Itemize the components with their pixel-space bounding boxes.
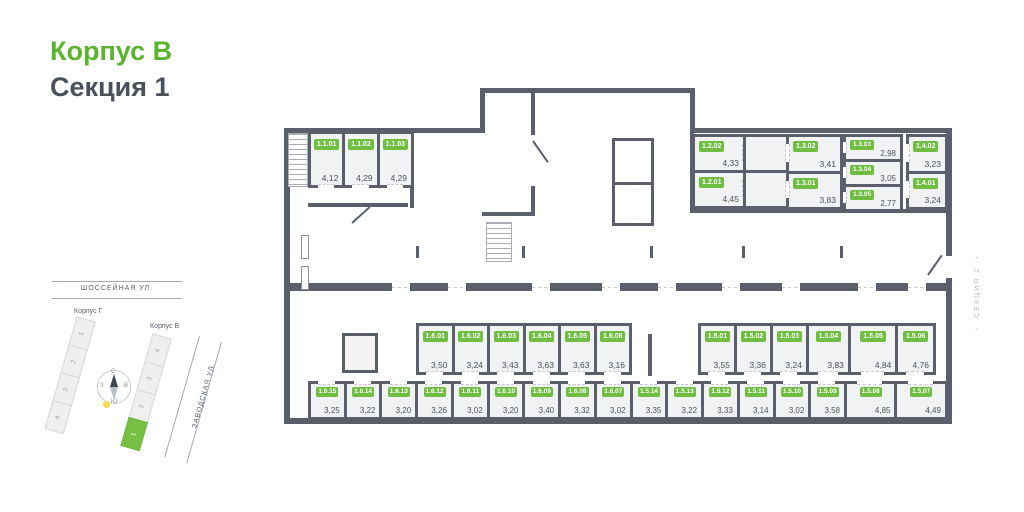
room-1.4.02[interactable]: 1.4.023,23 bbox=[906, 134, 948, 174]
room-unlabeled bbox=[342, 333, 378, 373]
room-1.2.01[interactable]: 1.2.014,45 bbox=[692, 170, 746, 209]
room-id-badge[interactable]: 1.3.05 bbox=[850, 190, 874, 200]
wall-mid-stub bbox=[648, 334, 652, 376]
room-area-value: 3,58 bbox=[824, 406, 840, 415]
column-mark bbox=[416, 246, 419, 258]
room-1.2.02[interactable]: 1.2.024,33 bbox=[692, 134, 746, 173]
minimap-section-1[interactable]: 1 bbox=[120, 417, 147, 451]
room-id-badge[interactable]: 1.5.13 bbox=[674, 387, 696, 397]
room-area-value: 3,02 bbox=[789, 406, 805, 415]
room-area-value: 3,02 bbox=[610, 406, 626, 415]
corridor-opening bbox=[858, 283, 876, 291]
room-area-value: 4,29 bbox=[390, 173, 407, 183]
room-area-value: 3,35 bbox=[646, 406, 662, 415]
room-1.4.01[interactable]: 1.4.013,24 bbox=[906, 171, 948, 211]
compass-icon: С З В Ю bbox=[97, 370, 131, 404]
room-group-bottom: 1.6.153,251.6.143,221.6.133,201.6.123,26… bbox=[308, 381, 948, 420]
room-1.3.03[interactable]: 1.3.032,98 bbox=[843, 134, 903, 162]
room-group-empty bbox=[743, 134, 789, 209]
wall-tower-top bbox=[480, 88, 695, 93]
room-area-value: 2,77 bbox=[880, 199, 896, 208]
room-area-value: 3,43 bbox=[502, 360, 519, 370]
room-area-value: 3,24 bbox=[924, 195, 941, 205]
room-area-value: 3,23 bbox=[924, 159, 941, 169]
room-area-value: 3,20 bbox=[503, 406, 519, 415]
column-mark bbox=[840, 246, 843, 258]
room-id-badge[interactable]: 1.2.01 bbox=[699, 177, 724, 188]
room-1.5.06[interactable]: 1.5.064,76 bbox=[895, 323, 936, 375]
sun-position-icon bbox=[103, 401, 110, 408]
room-1.6.02[interactable]: 1.6.023,24 bbox=[452, 323, 491, 375]
compass-needle-south bbox=[110, 387, 118, 400]
korpus-g-strip[interactable]: 1234 bbox=[44, 317, 95, 434]
corridor-opening bbox=[532, 283, 550, 291]
room-1.5.03[interactable]: 1.5.033,24 bbox=[770, 323, 809, 375]
section2-arrow-icon: ‹ bbox=[974, 326, 981, 330]
room-group-1-3-b: 1.3.032,981.3.043,051.3.052,77 bbox=[843, 134, 903, 212]
compass-needle-north bbox=[110, 374, 118, 387]
room-area-value: 4,49 bbox=[925, 406, 941, 415]
street-top-line bbox=[52, 298, 182, 299]
room-id-badge[interactable]: 1.3.01 bbox=[793, 178, 818, 189]
floorplan-page: Корпус В Секция 1 1.1.014,121.1.024,291.… bbox=[0, 0, 1024, 512]
room-id-badge[interactable]: 1.1.01 bbox=[314, 139, 339, 150]
room-1.6.07[interactable]: 1.6.073,02 bbox=[594, 381, 633, 420]
room-area-value: 4,85 bbox=[875, 406, 891, 415]
room-area-value: 4,29 bbox=[356, 173, 373, 183]
room-area-value: 3,26 bbox=[431, 406, 447, 415]
minimap-section-number: 3 bbox=[62, 387, 70, 392]
room-area-value: 3,16 bbox=[608, 360, 625, 370]
room-1.6.08[interactable]: 1.6.083,32 bbox=[558, 381, 597, 420]
room-1.6.13[interactable]: 1.6.133,20 bbox=[379, 381, 418, 420]
room-id-badge[interactable]: 1.5.01 bbox=[705, 331, 730, 342]
room-1.5.10[interactable]: 1.5.103,02 bbox=[773, 381, 812, 420]
room-area-value: 3,40 bbox=[539, 406, 555, 415]
room-id-badge[interactable]: 1.4.02 bbox=[913, 141, 938, 152]
room-area-value: 2,98 bbox=[880, 149, 896, 158]
wall-inner-left-wing-horizontal bbox=[308, 203, 408, 207]
column-mark bbox=[522, 246, 525, 258]
room-area-value: 3,36 bbox=[749, 360, 766, 370]
wall-niche bbox=[301, 235, 309, 259]
room-id-badge[interactable]: 1.6.03 bbox=[494, 331, 519, 342]
minimap-section-number: 2 bbox=[70, 359, 78, 364]
korpus-g-label: Корпус Г bbox=[74, 308, 102, 315]
room-1.5.13[interactable]: 1.5.133,22 bbox=[665, 381, 704, 420]
room-area-value: 3,24 bbox=[785, 360, 802, 370]
room-group-1-1: 1.1.014,121.1.024,291.1.034,29 bbox=[308, 131, 414, 188]
room-area-value: 3,22 bbox=[360, 406, 376, 415]
room-id-badge[interactable]: 1.5.14 bbox=[638, 387, 660, 397]
minimap-section-number: 3 bbox=[146, 376, 154, 381]
column-mark bbox=[742, 246, 745, 258]
room-1.1.03[interactable]: 1.1.034,29 bbox=[377, 131, 414, 188]
room-area-value: 3,20 bbox=[396, 406, 412, 415]
room-area-value: 4,33 bbox=[722, 158, 739, 168]
compass-east-label: В bbox=[124, 383, 128, 389]
room-1.6.03[interactable]: 1.6.033,43 bbox=[487, 323, 526, 375]
wall-tower-left bbox=[480, 88, 485, 133]
room-1.5.02[interactable]: 1.5.023,36 bbox=[734, 323, 773, 375]
room-area-value: 3,33 bbox=[717, 406, 733, 415]
room-1.6.10[interactable]: 1.6.103,20 bbox=[487, 381, 526, 420]
room-id-badge[interactable]: 1.5.04 bbox=[816, 331, 841, 342]
room-group-1-4: 1.4.023,231.4.013,24 bbox=[906, 134, 948, 210]
room-1.5.05[interactable]: 1.5.054,84 bbox=[848, 323, 899, 375]
elevator-divider bbox=[615, 182, 651, 185]
room-id-badge[interactable]: 1.6.13 bbox=[388, 387, 410, 397]
room-1.6.14[interactable]: 1.6.143,22 bbox=[344, 381, 383, 420]
wall-niche bbox=[301, 266, 309, 290]
corridor-opening bbox=[448, 283, 466, 291]
room-id-badge[interactable]: 1.6.10 bbox=[495, 387, 517, 397]
room-id-badge[interactable]: 1.6.01 bbox=[423, 331, 448, 342]
room-1.1.02[interactable]: 1.1.024,29 bbox=[342, 131, 379, 188]
room-1.3.01[interactable]: 1.3.013,83 bbox=[786, 171, 843, 211]
room-id-badge[interactable]: 1.6.02 bbox=[458, 331, 483, 342]
section-title: Секция 1 bbox=[50, 72, 170, 103]
column-mark bbox=[650, 246, 653, 258]
wall-tower-right bbox=[690, 88, 695, 133]
room-area-value: 4,12 bbox=[322, 173, 339, 183]
room-id-badge[interactable]: 1.6.05 bbox=[565, 331, 590, 342]
room-area-value: 3,63 bbox=[573, 360, 590, 370]
corridor-opening bbox=[908, 283, 926, 291]
room-id-badge[interactable]: 1.6.12 bbox=[424, 387, 446, 397]
room-id-badge[interactable]: 1.6.14 bbox=[352, 387, 374, 397]
room-id-badge[interactable]: 1.6.08 bbox=[566, 387, 588, 397]
room-id-badge[interactable]: 1.6.15 bbox=[316, 387, 338, 397]
street-top-label: ШОССЕЙНАЯ УЛ. bbox=[52, 285, 182, 292]
room-group-1-6-upper: 1.6.013,501.6.023,241.6.033,431.6.043,63… bbox=[416, 323, 632, 375]
room-area-value: 3,50 bbox=[431, 360, 448, 370]
room-1.3.02[interactable]: 1.3.023,41 bbox=[786, 134, 843, 174]
room-1.6.11[interactable]: 1.6.113,02 bbox=[451, 381, 490, 420]
room-group-empty-small bbox=[342, 333, 378, 373]
section2-label: СЕКЦИЯ 2 bbox=[974, 267, 981, 318]
room-1.5.08[interactable]: 1.5.084,85 bbox=[844, 381, 897, 420]
room-id-badge[interactable]: 1.6.11 bbox=[459, 387, 481, 397]
room-1.6.05[interactable]: 1.6.053,63 bbox=[558, 323, 597, 375]
room-id-badge[interactable]: 1.6.07 bbox=[602, 387, 624, 397]
room-group-1-5-upper: 1.5.013,551.5.023,361.5.033,241.5.043,83… bbox=[698, 323, 936, 375]
room-id-badge[interactable]: 1.5.09 bbox=[817, 387, 839, 397]
wall-tower-inner-upper bbox=[531, 93, 535, 135]
elevator-shaft bbox=[612, 138, 654, 226]
room-1.6.15[interactable]: 1.6.153,25 bbox=[308, 381, 347, 420]
room-area-value: 3,05 bbox=[880, 174, 896, 183]
room-unlabeled bbox=[743, 170, 789, 209]
room-id-badge[interactable]: 1.5.02 bbox=[741, 331, 766, 342]
corridor-opening bbox=[782, 283, 800, 291]
room-id-badge[interactable]: 1.1.02 bbox=[348, 139, 373, 150]
room-1.5.04[interactable]: 1.5.043,83 bbox=[806, 323, 851, 375]
room-id-badge[interactable]: 1.5.11 bbox=[745, 387, 767, 397]
room-id-badge[interactable]: 1.6.06 bbox=[600, 331, 625, 342]
room-area-value: 4,76 bbox=[912, 360, 929, 370]
room-1.6.12[interactable]: 1.6.123,26 bbox=[415, 381, 454, 420]
street-top-line bbox=[52, 281, 182, 282]
door-left-wing-diagonal bbox=[351, 206, 370, 224]
room-area-value: 3,14 bbox=[753, 406, 769, 415]
room-id-badge[interactable]: 1.3.02 bbox=[793, 141, 818, 152]
minimap-section-number: 1 bbox=[78, 331, 86, 336]
room-area-value: 3,24 bbox=[466, 360, 483, 370]
room-1.5.09[interactable]: 1.5.093,58 bbox=[808, 381, 847, 420]
room-id-badge[interactable]: 1.5.08 bbox=[860, 387, 882, 397]
corridor-opening bbox=[392, 283, 410, 291]
section2-arrow-icon: › bbox=[974, 255, 981, 259]
room-id-badge[interactable]: 1.6.04 bbox=[529, 331, 554, 342]
minimap-section-number: 4 bbox=[154, 348, 162, 353]
room-id-badge[interactable]: 1.5.10 bbox=[781, 387, 803, 397]
room-area-value: 3,25 bbox=[324, 406, 340, 415]
room-area-value: 3,22 bbox=[682, 406, 698, 415]
door-section2-diagonal bbox=[927, 255, 942, 276]
stairs-left-icon bbox=[288, 133, 308, 187]
room-id-badge[interactable]: 1.5.06 bbox=[903, 331, 928, 342]
room-id-badge[interactable]: 1.2.02 bbox=[699, 141, 724, 152]
room-1.5.14[interactable]: 1.5.143,35 bbox=[630, 381, 669, 420]
room-1.6.06[interactable]: 1.6.063,16 bbox=[594, 323, 633, 375]
room-1.3.05[interactable]: 1.3.052,77 bbox=[843, 184, 903, 212]
room-group-1-2: 1.2.024,331.2.014,45 bbox=[692, 134, 746, 209]
room-1.5.07[interactable]: 1.5.074,49 bbox=[894, 381, 947, 420]
room-area-value: 3,63 bbox=[537, 360, 554, 370]
room-1.5.01[interactable]: 1.5.013,55 bbox=[698, 323, 737, 375]
room-id-badge[interactable]: 1.5.12 bbox=[709, 387, 731, 397]
room-id-badge[interactable]: 1.3.03 bbox=[850, 140, 874, 150]
section2-nav-label[interactable]: ‹ СЕКЦИЯ 2 › bbox=[974, 230, 981, 330]
minimap-section-number: 1 bbox=[130, 431, 138, 436]
room-1.3.04[interactable]: 1.3.043,05 bbox=[843, 159, 903, 187]
room-area-value: 3,83 bbox=[819, 195, 836, 205]
korpus-v-label: Корпус В bbox=[150, 323, 179, 330]
room-1.5.11[interactable]: 1.5.113,14 bbox=[737, 381, 776, 420]
corridor-opening bbox=[602, 283, 620, 291]
room-id-badge[interactable]: 1.3.04 bbox=[850, 165, 874, 175]
room-1.5.12[interactable]: 1.5.123,33 bbox=[701, 381, 740, 420]
room-1.6.09[interactable]: 1.6.093,40 bbox=[522, 381, 561, 420]
wall-top-right-wing bbox=[690, 128, 952, 133]
room-id-badge[interactable]: 1.4.01 bbox=[913, 178, 938, 189]
room-area-value: 4,84 bbox=[875, 360, 892, 370]
room-1.6.04[interactable]: 1.6.043,63 bbox=[523, 323, 562, 375]
room-id-badge[interactable]: 1.6.09 bbox=[531, 387, 553, 397]
room-area-value: 3,02 bbox=[467, 406, 483, 415]
room-id-badge[interactable]: 1.1.03 bbox=[383, 139, 408, 150]
room-area-value: 3,55 bbox=[713, 360, 730, 370]
minimap-section-number: 4 bbox=[54, 414, 62, 419]
room-area-value: 4,45 bbox=[722, 194, 739, 204]
room-area-value: 3,83 bbox=[827, 360, 844, 370]
room-id-badge[interactable]: 1.5.03 bbox=[777, 331, 802, 342]
minimap-section-number: 2 bbox=[138, 404, 146, 409]
door-tower-diagonal bbox=[532, 140, 549, 162]
room-1.6.01[interactable]: 1.6.013,50 bbox=[416, 323, 455, 375]
room-area-value: 3,32 bbox=[574, 406, 590, 415]
minimap-section-4[interactable]: 4 bbox=[44, 400, 71, 434]
corridor-opening bbox=[722, 283, 740, 291]
compass-west-label: З bbox=[100, 383, 104, 389]
room-unlabeled bbox=[743, 134, 789, 173]
building-title: Корпус В bbox=[50, 36, 172, 67]
room-id-badge[interactable]: 1.5.07 bbox=[910, 387, 932, 397]
room-id-badge[interactable]: 1.5.05 bbox=[860, 331, 885, 342]
stairs-center-icon bbox=[486, 222, 512, 262]
room-1.1.01[interactable]: 1.1.014,12 bbox=[308, 131, 345, 188]
wall-tower-inner-horizontal bbox=[482, 212, 535, 216]
room-area-value: 3,41 bbox=[819, 159, 836, 169]
corridor-opening bbox=[658, 283, 676, 291]
room-group-1-3-a: 1.3.023,411.3.013,83 bbox=[786, 134, 843, 210]
